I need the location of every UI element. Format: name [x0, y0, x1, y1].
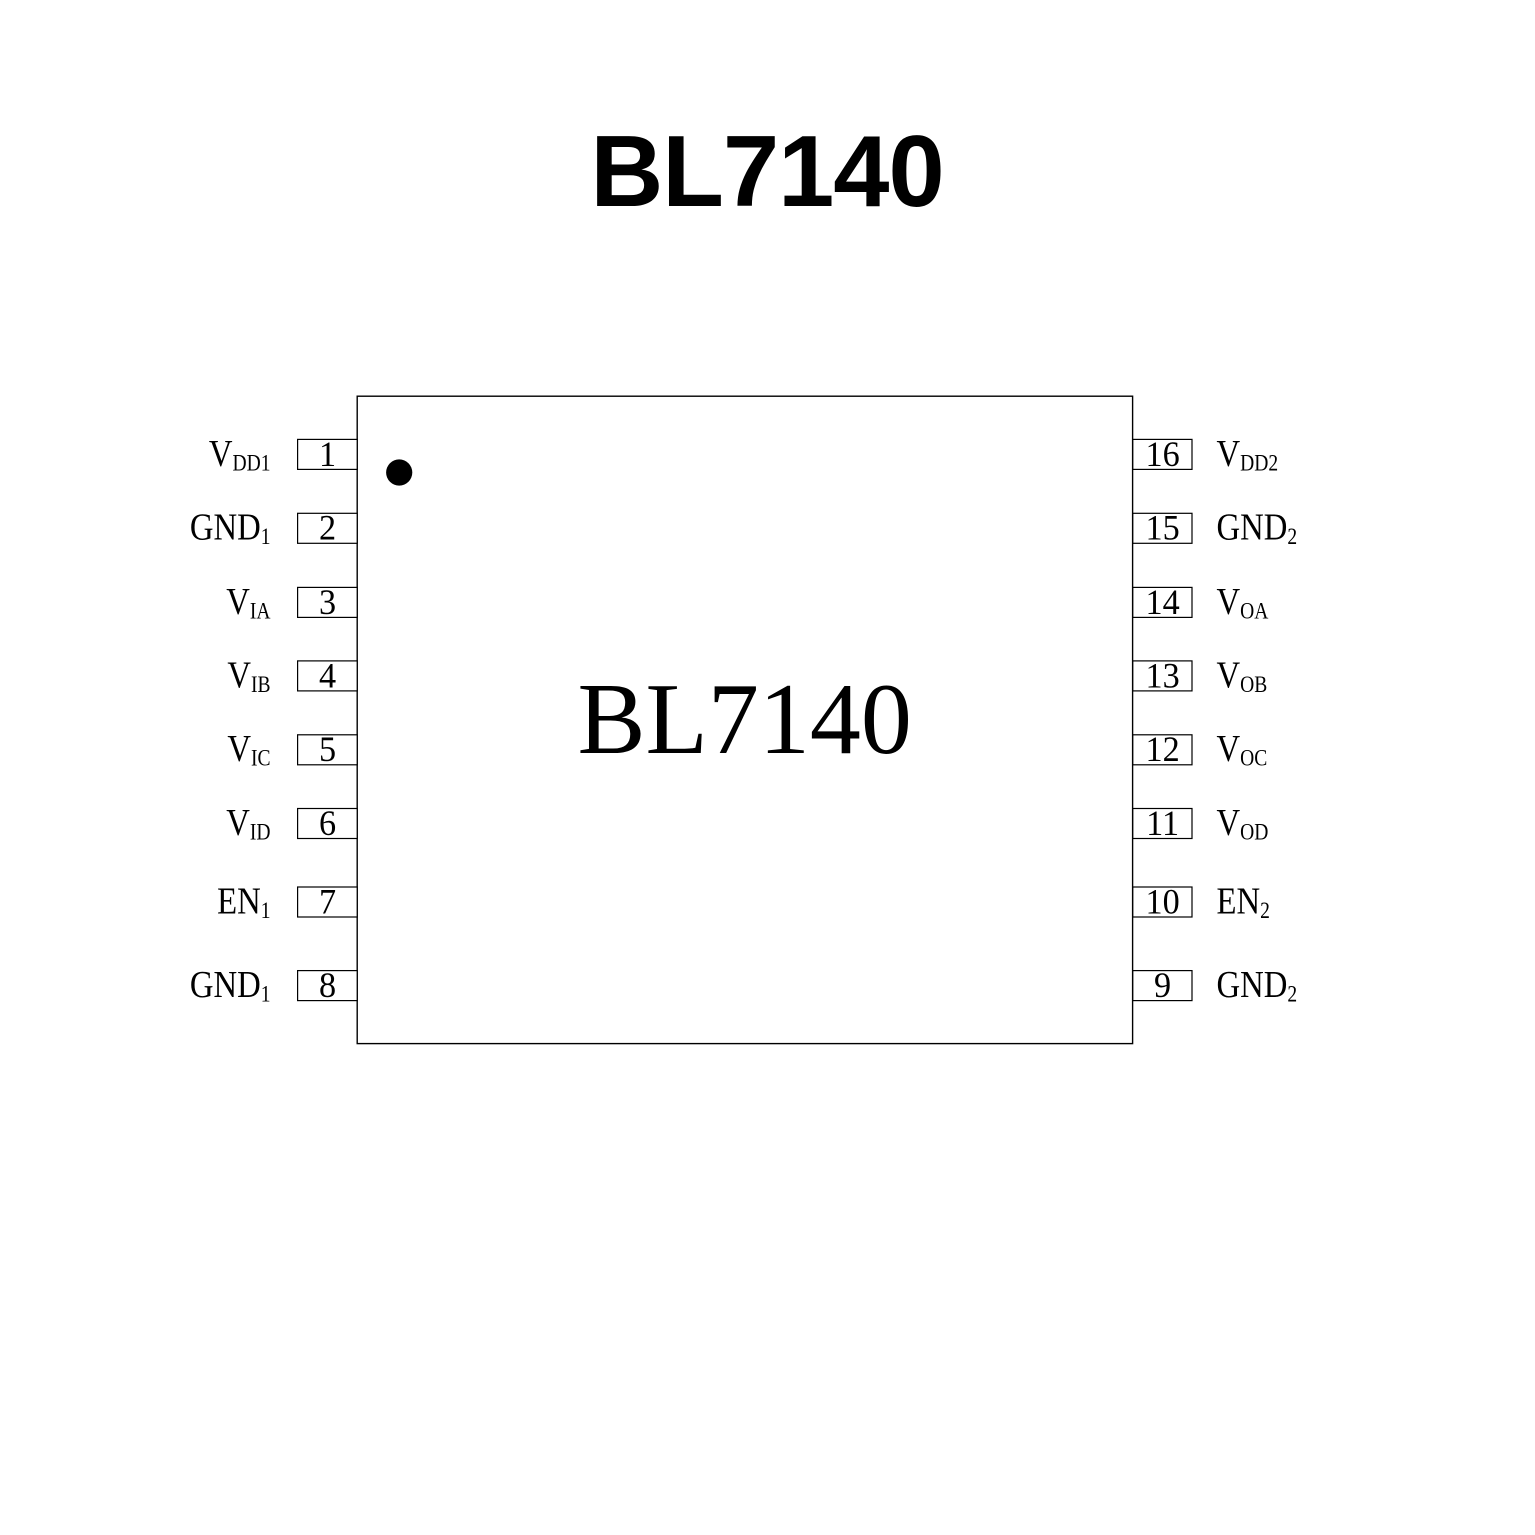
- svg-text:2: 2: [319, 508, 336, 548]
- svg-text:GND1: GND1: [190, 505, 271, 549]
- svg-text:1: 1: [319, 434, 336, 474]
- svg-text:8: 8: [319, 965, 336, 1005]
- svg-text:12: 12: [1146, 729, 1180, 769]
- svg-text:16: 16: [1146, 434, 1180, 474]
- svg-text:7: 7: [319, 882, 336, 922]
- svg-text:5: 5: [319, 729, 336, 769]
- svg-text:15: 15: [1146, 508, 1180, 548]
- svg-text:GND2: GND2: [1217, 505, 1298, 549]
- svg-text:13: 13: [1146, 656, 1180, 696]
- svg-text:3: 3: [319, 582, 336, 622]
- svg-text:GND1: GND1: [190, 963, 271, 1007]
- svg-text:GND2: GND2: [1217, 963, 1298, 1007]
- svg-text:11: 11: [1146, 803, 1179, 843]
- svg-text:14: 14: [1146, 582, 1180, 622]
- svg-text:BL7140: BL7140: [578, 663, 912, 776]
- svg-text:9: 9: [1154, 965, 1171, 1005]
- svg-text:10: 10: [1146, 882, 1180, 922]
- svg-text:BL7140: BL7140: [590, 116, 943, 228]
- svg-text:4: 4: [319, 656, 336, 696]
- svg-text:6: 6: [319, 803, 336, 843]
